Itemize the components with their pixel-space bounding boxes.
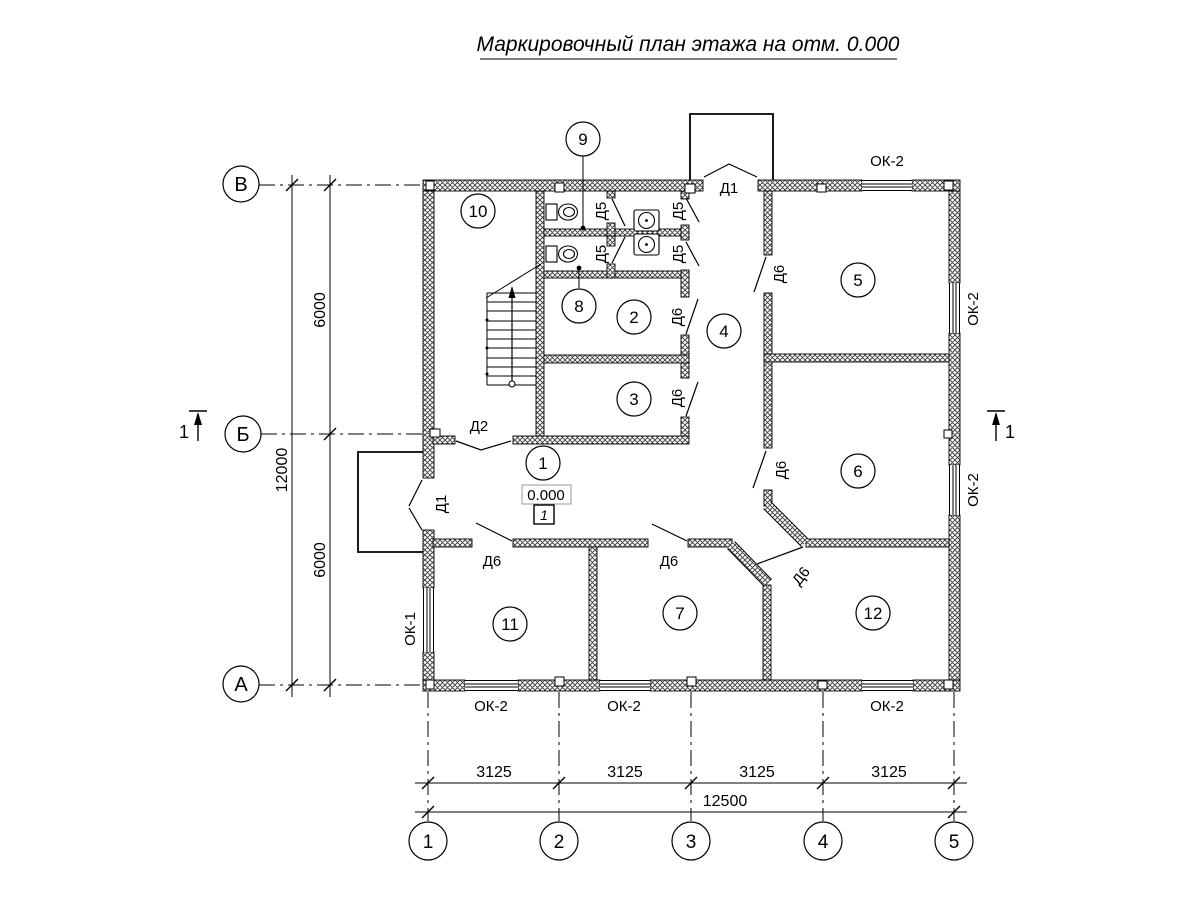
svg-text:1: 1: [1005, 422, 1015, 442]
svg-text:12: 12: [864, 604, 883, 623]
door-label: Д6: [669, 389, 686, 408]
door-label: Д6: [771, 265, 788, 284]
window-label: ОК-1: [402, 612, 419, 646]
room-marker: 11: [493, 607, 527, 641]
floor-plan-drawing: Маркировочный план этажа на отм. 0.000: [0, 0, 1200, 900]
svg-text:3: 3: [629, 390, 638, 409]
room-marker: 2: [617, 300, 651, 334]
window-label: ОК-2: [965, 473, 982, 507]
window-top: [862, 180, 912, 191]
window-label: ОК-2: [607, 698, 641, 715]
door-d1-left: [409, 480, 422, 530]
axis-bubble-row: Б: [225, 416, 261, 452]
dim-3125: 3125: [739, 764, 775, 781]
door-label: Д5: [670, 202, 687, 221]
room-marker: 10: [461, 194, 495, 228]
axis-bubble-col: 3: [672, 822, 710, 860]
axis-bubble-col: 4: [804, 822, 842, 860]
window-bottom-2: [600, 680, 650, 691]
section-arrow-icon: 1: [987, 411, 1015, 442]
window-right-lower: [949, 465, 960, 515]
dim-6000-lower: 6000: [312, 542, 329, 578]
section-arrow-icon: 1: [179, 411, 207, 442]
door-label: Д5: [593, 202, 610, 221]
axis-bubble-row: В: [223, 166, 259, 202]
window-bottom-3: [862, 680, 913, 691]
door-label: Д5: [593, 245, 610, 264]
window-label: ОК-2: [870, 698, 904, 715]
room-marker: 6: [841, 454, 875, 488]
room-marker: 3: [617, 382, 651, 416]
svg-text:Б: Б: [236, 424, 249, 446]
window-label: ОК-2: [870, 153, 904, 170]
svg-text:А: А: [234, 674, 248, 696]
porch-left: [358, 452, 423, 552]
dim-12000: 12000: [274, 448, 291, 493]
room-marker: 9: [566, 122, 600, 156]
door-label: Д5: [670, 245, 687, 264]
opening-labels: Д1 Д1 Д2 Д5 Д5 Д5 Д5 Д6 Д6 Д6 Д6 Д6 Д6 Д…: [402, 153, 982, 715]
room-marker: 7: [663, 596, 697, 630]
svg-text:11: 11: [501, 615, 519, 634]
door-label: Д6: [669, 308, 686, 327]
svg-text:3: 3: [686, 832, 697, 853]
toilet-icon: [546, 204, 578, 220]
door-label: Д6: [789, 564, 814, 589]
svg-text:5: 5: [949, 832, 960, 853]
door-label: Д1: [720, 180, 739, 197]
washbasin-icon: [634, 210, 659, 231]
dim-3125: 3125: [607, 764, 643, 781]
staircase: [486, 264, 542, 387]
elevation-value: 0.000: [527, 487, 565, 504]
door-label: Д1: [433, 495, 450, 514]
page-title: Маркировочный план этажа на отм. 0.000: [477, 33, 900, 56]
svg-text:8: 8: [574, 297, 583, 316]
door-d1-top: [704, 164, 757, 177]
svg-text:6: 6: [853, 462, 862, 481]
window-label: ОК-2: [965, 292, 982, 326]
svg-text:4: 4: [818, 832, 829, 853]
washbasin-icon: [634, 234, 659, 255]
svg-text:7: 7: [675, 604, 684, 623]
door-label: Д6: [483, 553, 502, 570]
svg-text:2: 2: [554, 832, 565, 853]
room-marker: 5: [841, 263, 875, 297]
svg-text:4: 4: [719, 322, 728, 341]
dim-6000-upper: 6000: [312, 292, 329, 328]
svg-text:5: 5: [853, 271, 862, 290]
porch-top: [690, 114, 773, 180]
title-block: Маркировочный план этажа на отм. 0.000: [477, 33, 900, 59]
door-d2: [456, 441, 511, 450]
dim-12500: 12500: [703, 793, 748, 810]
dim-3125: 3125: [871, 764, 907, 781]
axis-bubble-col: 2: [540, 822, 578, 860]
svg-text:2: 2: [629, 308, 638, 327]
stair-arrowhead-icon: [509, 286, 516, 298]
toilet-icon: [546, 246, 578, 262]
door-label: Д2: [470, 418, 489, 435]
room-marker: 12: [856, 596, 890, 630]
svg-text:1: 1: [423, 832, 434, 853]
door-label: Д6: [773, 461, 790, 480]
svg-text:1: 1: [179, 422, 189, 442]
axis-bubble-col: 5: [935, 822, 973, 860]
axis-bubble-col: 1: [409, 822, 447, 860]
room-marker: 1: [526, 446, 560, 480]
elevation-mark: 0.000 1: [522, 485, 571, 524]
window-left: [423, 588, 434, 652]
window-label: ОК-2: [474, 698, 508, 715]
floor-type-value: 1: [540, 507, 548, 523]
room-marker: 8: [562, 289, 596, 323]
window-right-upper: [949, 283, 960, 333]
drawing-page: Маркировочный план этажа на отм. 0.000: [0, 0, 1200, 900]
door-label: Д6: [660, 553, 679, 570]
svg-text:9: 9: [578, 130, 587, 149]
window-bottom-1: [465, 680, 518, 691]
svg-text:10: 10: [469, 202, 488, 221]
svg-text:В: В: [234, 174, 247, 196]
svg-text:1: 1: [538, 454, 547, 473]
axis-bubble-row: А: [223, 666, 259, 702]
room-marker: 4: [707, 314, 741, 348]
dim-3125: 3125: [476, 764, 512, 781]
